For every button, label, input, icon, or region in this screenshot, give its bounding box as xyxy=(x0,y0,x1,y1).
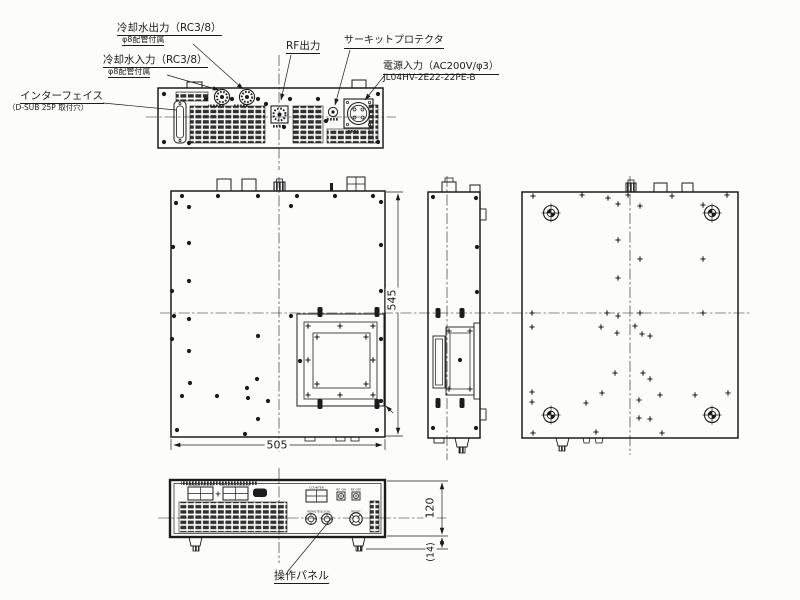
rf-output-connector xyxy=(271,106,288,123)
dsub-connector xyxy=(174,101,186,143)
reset-label: RESET xyxy=(351,510,361,514)
cooling-in-connector xyxy=(239,89,254,104)
circuit-protector-switch xyxy=(328,107,337,116)
foot-mark xyxy=(703,204,722,223)
reflected-power-meter xyxy=(223,487,248,500)
callout-interface-line2: （D-SUB 25P 取付穴） xyxy=(8,104,88,112)
meter2-label: REFLECTED POWER xyxy=(220,483,249,487)
front-vent-left xyxy=(179,502,287,532)
callout-rf-output: RF出力 xyxy=(286,41,320,54)
cooling-out-connector xyxy=(214,89,229,104)
drawing-linework: FORWARD POWER REFLECTED POWER COUNTER RF… xyxy=(0,0,800,600)
forward-power-meter xyxy=(188,487,213,500)
callout-power-input-line2: JL04HV-2E22-22PE-B xyxy=(383,74,476,83)
front-view: FORWARD POWER REFLECTED POWER COUNTER RF… xyxy=(170,480,385,551)
access-panel xyxy=(297,308,393,414)
callout-operation-panel: 操作パネル xyxy=(274,570,329,584)
plus-sign: + xyxy=(215,490,221,499)
side-view xyxy=(428,178,486,453)
callout-cooling-out-line2: φ8配管付属 xyxy=(122,36,164,46)
counter-label: COUNTER xyxy=(309,486,324,490)
side-internal-frame xyxy=(433,323,480,399)
top-view-screws xyxy=(170,194,382,435)
rear-vent-mid xyxy=(293,106,323,143)
rear-vent-small xyxy=(176,92,208,101)
dim-depth: 545 xyxy=(386,288,399,313)
aux-label: REMOTE/LOCAL xyxy=(307,510,331,514)
reset-button[interactable] xyxy=(350,513,362,525)
front-vent-right xyxy=(370,501,379,532)
rf-connector-top xyxy=(274,182,285,191)
aux-socket-1[interactable] xyxy=(306,514,317,525)
top-view xyxy=(170,177,393,441)
rf-off-button[interactable] xyxy=(352,492,360,500)
rf-off-label: RF OFF xyxy=(351,488,362,492)
rear-view xyxy=(158,80,383,148)
power-connector-top xyxy=(347,177,365,191)
callout-circuit-protector: サーキットプロテクタ xyxy=(344,36,444,49)
rf-on-button[interactable] xyxy=(337,492,345,500)
rear-vent-left xyxy=(190,106,265,143)
maker-logo-blob xyxy=(253,489,267,498)
dim-front-height: 120 xyxy=(424,496,437,521)
counter-display xyxy=(306,490,327,502)
dim-foot-height: (14) xyxy=(426,540,437,564)
power-input-connector xyxy=(344,99,373,128)
callout-cooling-in-line2: φ8配管付属 xyxy=(108,68,150,78)
foot-mark xyxy=(703,406,722,425)
rf-on-label: RF ON xyxy=(336,488,345,492)
cad-drawing-canvas: FORWARD POWER REFLECTED POWER COUNTER RF… xyxy=(0,0,800,600)
meter1-label: FORWARD POWER xyxy=(186,483,213,487)
dim-width: 505 xyxy=(265,439,290,452)
foot-mark xyxy=(542,406,561,425)
foot-mark xyxy=(542,204,561,223)
